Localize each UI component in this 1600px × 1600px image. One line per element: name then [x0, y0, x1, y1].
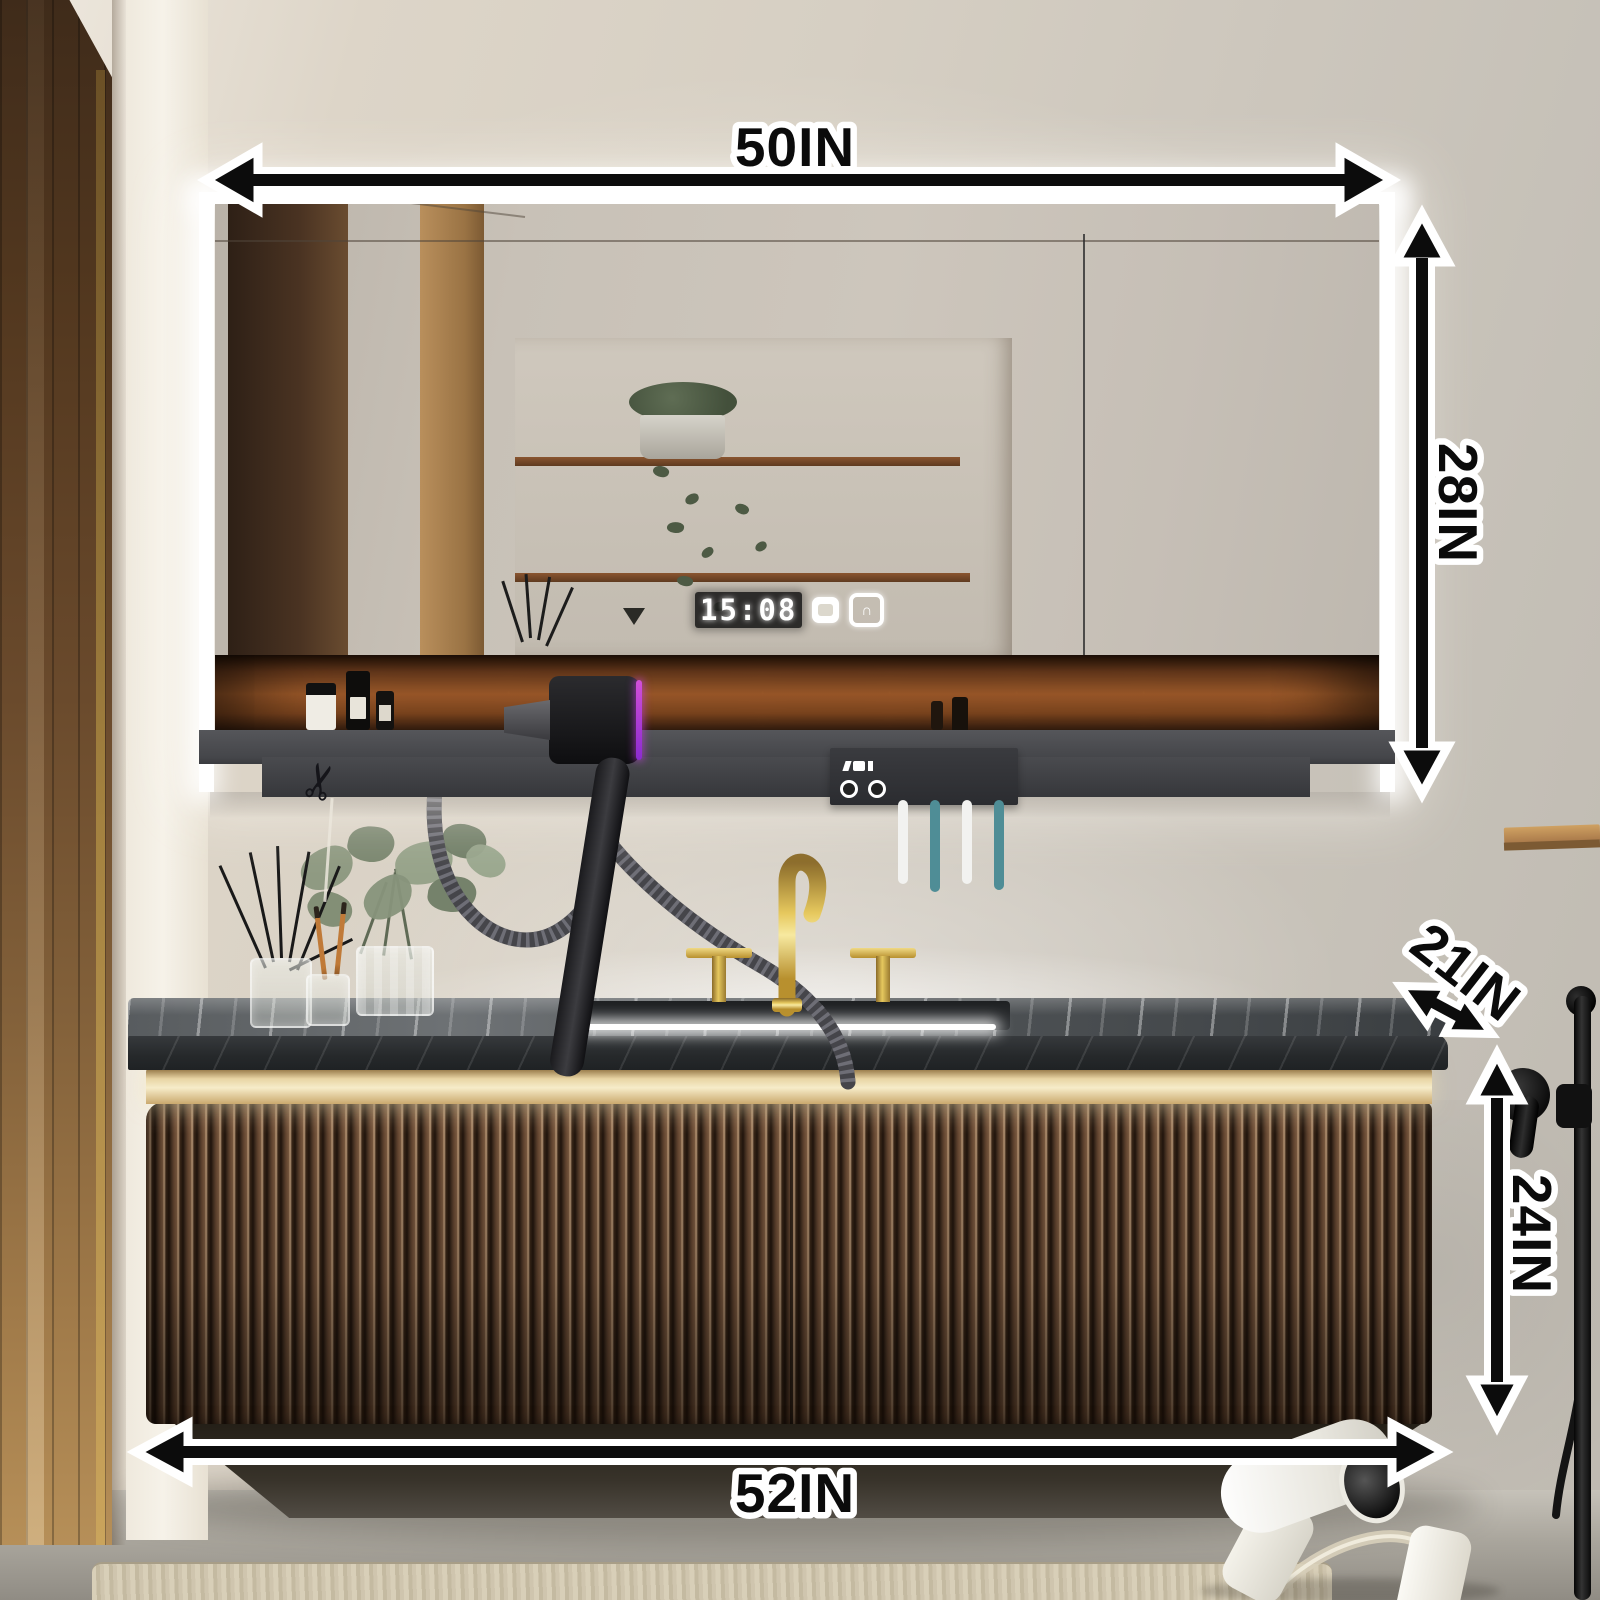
diffuser-jar: [250, 958, 312, 1028]
wooden-door: [0, 0, 112, 1545]
countertop-front-edge: [128, 1034, 1448, 1070]
reflection-ceiling-line: [215, 240, 1379, 242]
vanity-door-seam: [790, 1102, 793, 1424]
toothbrush: [930, 800, 940, 892]
handle-stem: [712, 956, 726, 1002]
cosmetic-bottle: [376, 691, 394, 730]
power-icon-glyph: ∩: [861, 603, 872, 618]
led-mirror-cabinet: 15:08 ∩: [199, 192, 1395, 792]
sterilizer-indicator-icons: [844, 761, 878, 771]
led-strip-left: [199, 192, 214, 792]
mirror-doors: 15:08 ∩: [215, 204, 1379, 655]
defogger-icon[interactable]: [812, 597, 839, 623]
door-shadow: [112, 0, 126, 1545]
toothbrush: [994, 800, 1004, 890]
cosmetic-bottle: [306, 683, 336, 730]
hair-dryer-accent-light: [636, 680, 642, 760]
fluted-vanity-cabinet: [146, 1102, 1432, 1424]
hair-dryer-body: [549, 676, 641, 764]
open-shelf-niche: [215, 655, 1379, 730]
reflection-wood-panel: [420, 204, 484, 655]
power-icon[interactable]: ∩: [849, 593, 884, 627]
mirror-clock-display: 15:08 ∩: [695, 590, 884, 630]
glass-vase: [356, 946, 434, 1016]
door-grain-highlight: [26, 0, 44, 1545]
cosmetic-bottle: [931, 701, 943, 730]
led-strip-right: [1380, 192, 1395, 792]
faucet-handle-left: [686, 948, 752, 1006]
reflection-dark-ornament: [623, 608, 645, 625]
faucet-handle-right: [850, 948, 916, 1006]
gold-trim-band: [146, 1068, 1432, 1104]
toothbrush: [898, 800, 908, 884]
sterilizer-buttons[interactable]: [840, 780, 886, 798]
cosmetic-bottle: [952, 697, 968, 734]
handle-stem: [876, 956, 890, 1002]
toothbrush-sterilizer: [830, 748, 1018, 805]
woven-rug: [92, 1562, 1332, 1600]
door-brass-edge: [96, 70, 105, 1545]
brush-cup: [306, 974, 350, 1026]
reflection-shelf: [515, 457, 960, 466]
toothbrush: [962, 800, 972, 884]
reflection-plant-pot: [640, 415, 725, 459]
cosmetic-bottle: [346, 671, 370, 730]
mirror-door-seam: [1083, 234, 1085, 655]
reflection-shelf: [515, 573, 970, 582]
ledge-apron: [262, 757, 1310, 797]
sink-led-strip: [576, 1024, 996, 1030]
clock-time: 15:08: [695, 592, 802, 628]
slide-bar-bracket: [1556, 1084, 1592, 1128]
reflection-wood-door: [228, 204, 348, 655]
bathroom-vanity-product-photo: 15:08 ∩ ✂: [0, 0, 1600, 1600]
